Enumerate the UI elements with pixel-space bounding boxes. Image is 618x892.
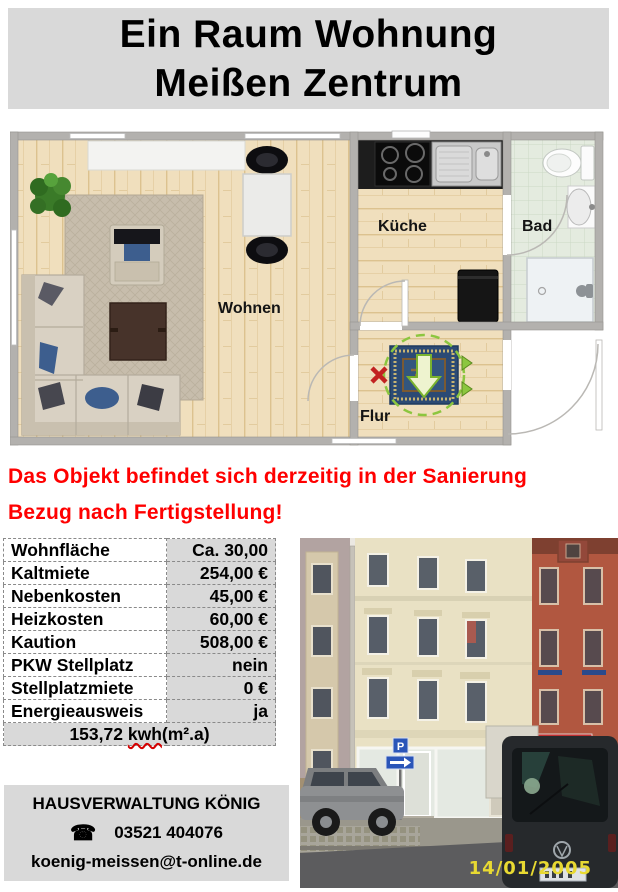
detail-value: Ca. 30,00 — [167, 539, 276, 562]
table-row: Energieausweis ja — [4, 700, 276, 723]
detail-label: Energieausweis — [4, 700, 167, 723]
details-table: Wohnfläche Ca. 30,00 Kaltmiete 254,00 € … — [3, 538, 276, 746]
detail-label: Kaution — [4, 631, 167, 654]
sideboard — [88, 141, 245, 170]
phone-row: ☎ 03521 404076 — [70, 823, 223, 843]
detail-label: Nebenkosten — [4, 585, 167, 608]
table-row: Nebenkosten 45,00 € — [4, 585, 276, 608]
kitchen-vent — [392, 131, 430, 138]
table-row: Kaltmiete 254,00 € — [4, 562, 276, 585]
energy-value-cell: 153,72 kwh(m².a) — [4, 723, 276, 746]
detail-value: 254,00 € — [167, 562, 276, 585]
floorplan-svg: Wohnen Küche Bad Flur — [10, 130, 618, 447]
detail-label: Kaltmiete — [4, 562, 167, 585]
table-row: Heizkosten 60,00 € — [4, 608, 276, 631]
phone-icon: ☎ — [70, 825, 96, 842]
phone-number: 03521 404076 — [114, 823, 223, 843]
renovation-notice: Das Objekt befindet sich derzeitig in de… — [8, 459, 612, 531]
contact-box: HAUSVERWALTUNG KÖNIG ☎ 03521 404076 koen… — [4, 785, 289, 881]
room-label-hall: Flur — [360, 408, 390, 425]
table-row: PKW Stellplatz nein — [4, 654, 276, 677]
detail-value: 45,00 € — [167, 585, 276, 608]
room-label-living: Wohnen — [218, 300, 281, 317]
table-row: Wohnfläche Ca. 30,00 — [4, 539, 276, 562]
table-row: Stellplatzmiete 0 € — [4, 677, 276, 700]
detail-value: 60,00 € — [167, 608, 276, 631]
detail-label: Wohnfläche — [4, 539, 167, 562]
flyer-page: Ein Raum Wohnung Meißen Zentrum — [0, 0, 618, 892]
energy-unit: kwh — [128, 724, 162, 744]
table-row: Kaution 508,00 € — [4, 631, 276, 654]
room-label-bath: Bad — [522, 218, 552, 235]
page-title-line-2: Meißen Zentrum — [154, 59, 462, 108]
shower — [527, 258, 593, 322]
detail-value: 0 € — [167, 677, 276, 700]
company-name: HAUSVERWALTUNG KÖNIG — [33, 794, 261, 814]
room-label-kitchen: Küche — [378, 218, 427, 235]
notice-line-2: Bezug nach Fertigstellung! — [8, 495, 612, 531]
coffee-table — [110, 303, 166, 360]
kitchen-counter — [358, 139, 503, 189]
detail-label: PKW Stellplatz — [4, 654, 167, 677]
building-photo-svg: P — [300, 538, 618, 888]
armchair — [110, 225, 164, 285]
red-curtain — [467, 621, 476, 643]
energy-value: 153,72 — [69, 724, 127, 744]
plant — [30, 173, 71, 217]
date-stamp: 14/01/2005 — [469, 858, 592, 879]
washbasin — [567, 186, 595, 228]
email-address: koenig-meissen@t-online.de — [31, 852, 262, 872]
detail-label: Heizkosten — [4, 608, 167, 631]
page-title-line-1: Ein Raum Wohnung — [120, 10, 498, 59]
floorplan-image: Wohnen Küche Bad Flur — [10, 130, 618, 447]
building-photo: P — [300, 538, 618, 888]
parking-sign-letter: P — [397, 741, 404, 753]
title-box: Ein Raum Wohnung Meißen Zentrum — [8, 8, 609, 109]
detail-value: 508,00 € — [167, 631, 276, 654]
detail-label: Stellplatzmiete — [4, 677, 167, 700]
kitchen-sink — [432, 142, 501, 186]
notice-line-1: Das Objekt befindet sich derzeitig in de… — [8, 459, 612, 495]
detail-value: ja — [167, 700, 276, 723]
energy-row: 153,72 kwh(m².a) — [4, 723, 276, 746]
energy-suffix: (m².a) — [162, 724, 210, 744]
detail-value: nein — [167, 654, 276, 677]
kitchen-fridge — [458, 270, 498, 322]
dining-table — [243, 146, 291, 264]
cooktop — [375, 142, 430, 186]
